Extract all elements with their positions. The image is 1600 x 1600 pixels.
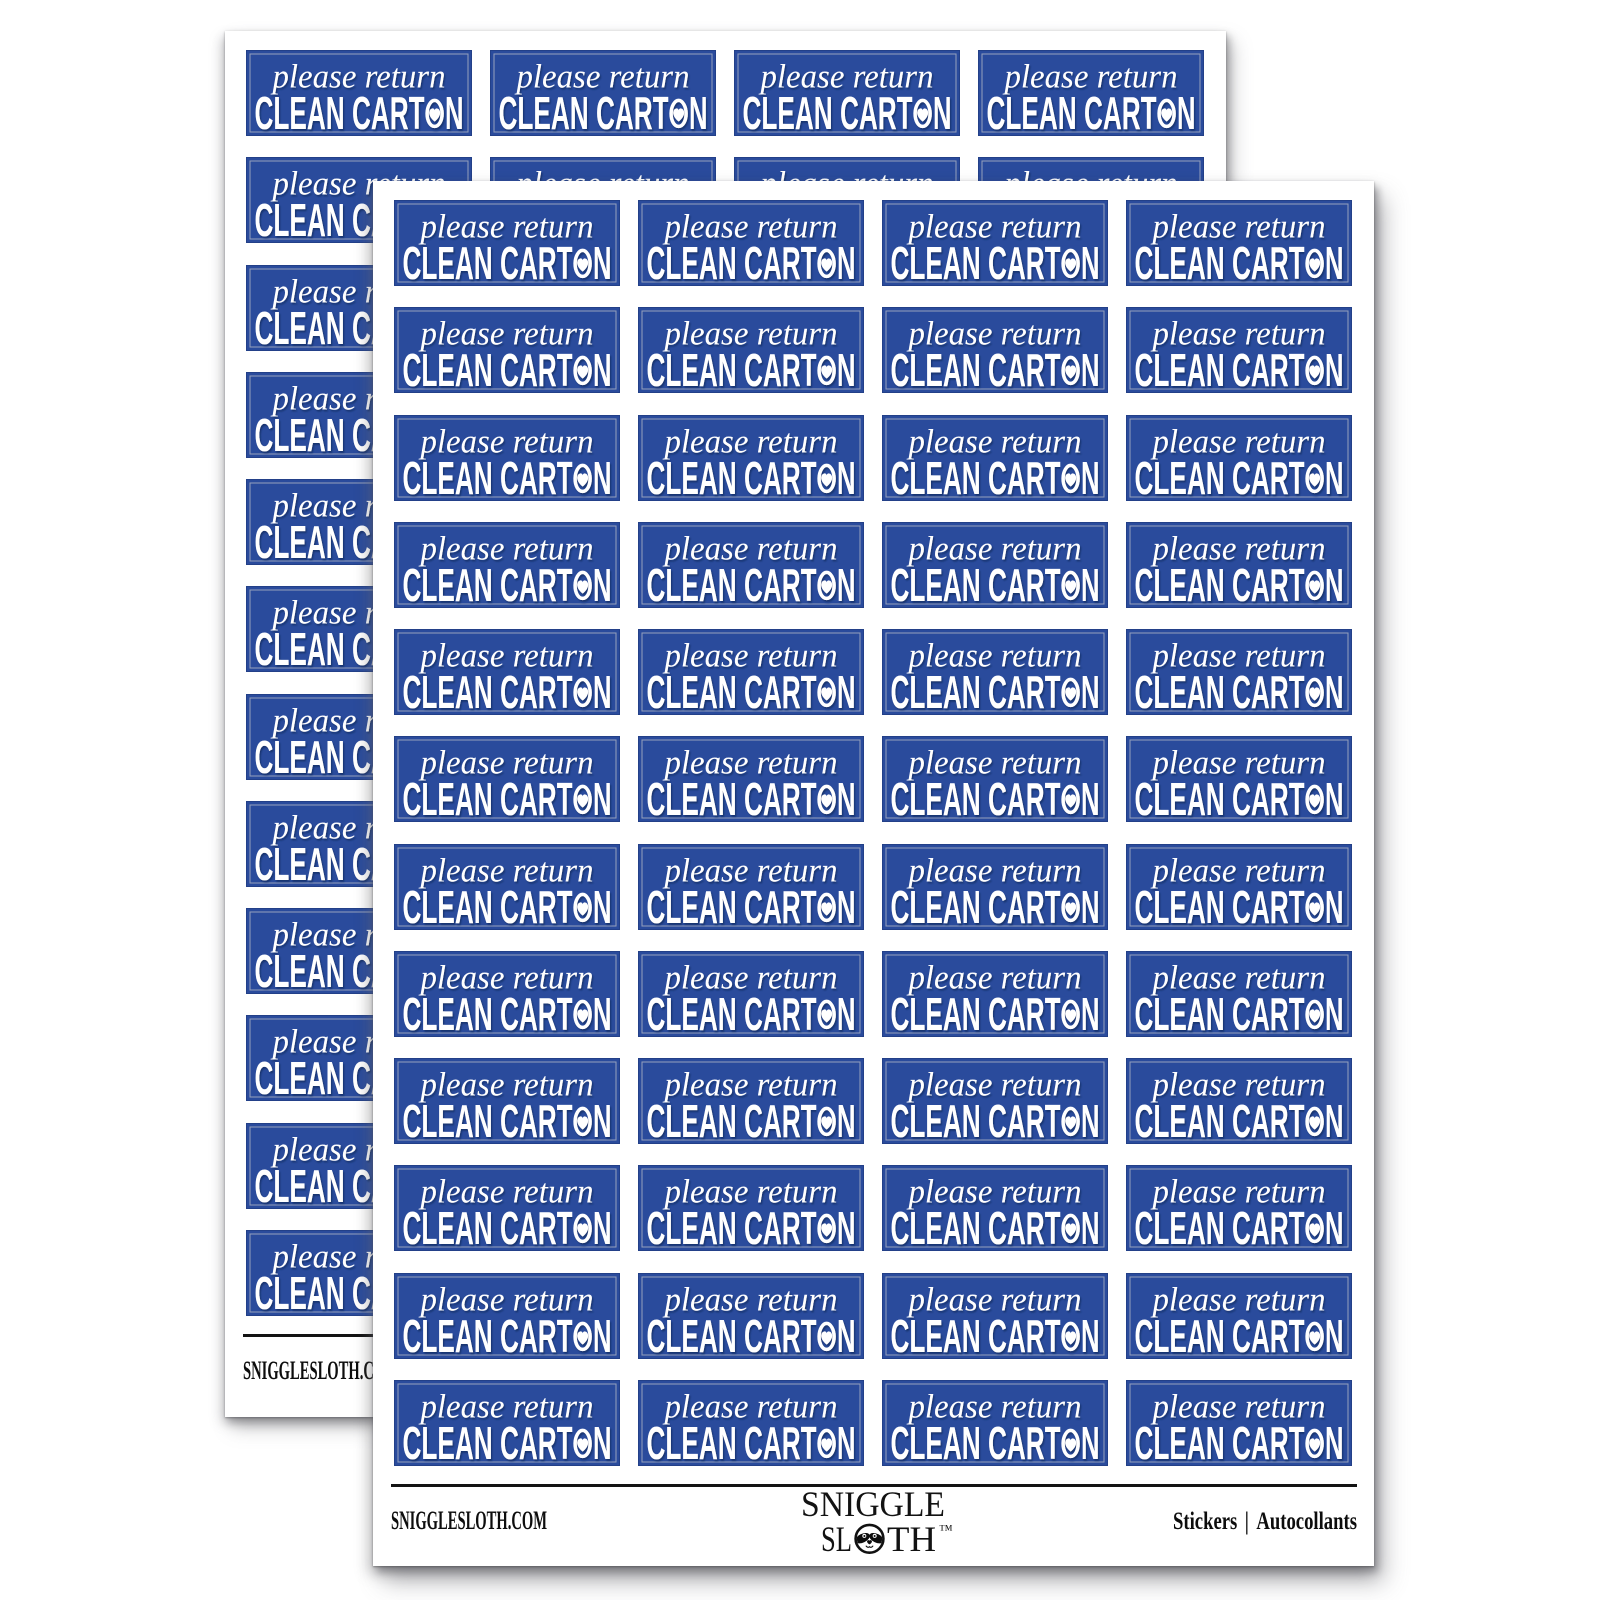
svg-text:SNIGGLESLOTH.COM: SNIGGLESLOTH.COM	[391, 1506, 547, 1535]
svg-text:TH: TH	[887, 1519, 936, 1559]
svg-text:SNIGGLE: SNIGGLE	[801, 1484, 945, 1524]
svg-text:™: ™	[939, 1523, 953, 1538]
svg-text:Stickers | Autocollants: Stickers | Autocollants	[1173, 1508, 1357, 1535]
svg-text:SL: SL	[821, 1519, 852, 1559]
